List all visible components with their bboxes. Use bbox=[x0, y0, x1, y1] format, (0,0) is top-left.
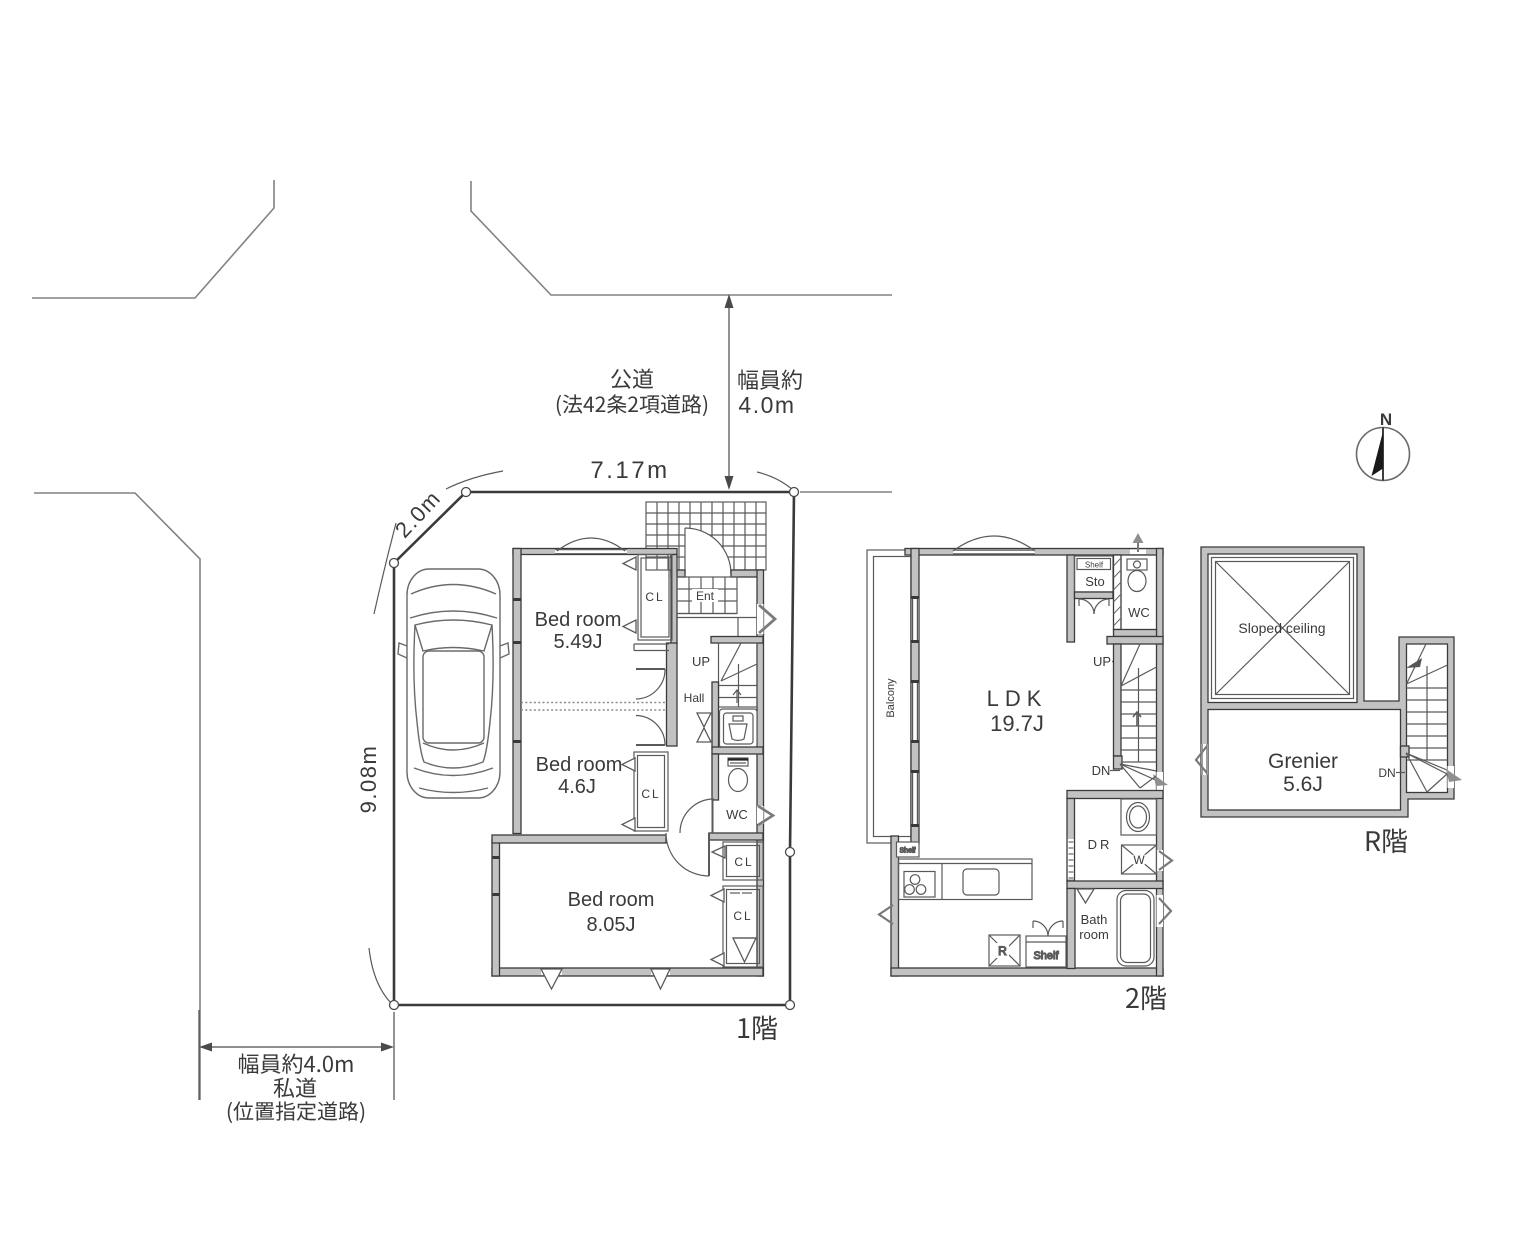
svg-text:CL: CL bbox=[734, 855, 753, 869]
svg-text:CL: CL bbox=[645, 590, 664, 604]
svg-text:Shelf: Shelf bbox=[900, 848, 916, 855]
svg-text:Bath: Bath bbox=[1081, 912, 1108, 927]
svg-text:Bed room: Bed room bbox=[568, 889, 655, 911]
svg-text:Sloped ceiling: Sloped ceiling bbox=[1238, 620, 1325, 636]
svg-text:7.17m: 7.17m bbox=[590, 457, 669, 484]
svg-text:DN: DN bbox=[1378, 766, 1395, 780]
svg-text:Ent: Ent bbox=[696, 589, 715, 603]
svg-text:19.7J: 19.7J bbox=[990, 711, 1044, 736]
svg-text:CL: CL bbox=[641, 787, 660, 801]
svg-text:Bed room: Bed room bbox=[535, 609, 622, 631]
svg-text:8.05J: 8.05J bbox=[587, 914, 636, 936]
svg-text:UP: UP bbox=[692, 654, 710, 669]
svg-text:room: room bbox=[1079, 927, 1109, 942]
svg-text:Shelf: Shelf bbox=[1033, 950, 1059, 962]
svg-text:UP: UP bbox=[1093, 654, 1111, 669]
svg-text:WC: WC bbox=[726, 807, 748, 822]
svg-text:5.6J: 5.6J bbox=[1283, 773, 1323, 796]
svg-text:DN: DN bbox=[1092, 763, 1111, 778]
svg-text:CL: CL bbox=[733, 909, 752, 923]
svg-text:Shelf: Shelf bbox=[1085, 561, 1104, 570]
svg-text:Hall: Hall bbox=[684, 691, 705, 705]
svg-text:R: R bbox=[998, 944, 1007, 958]
svg-text:4.0m: 4.0m bbox=[738, 392, 795, 418]
svg-text:Sto: Sto bbox=[1085, 574, 1105, 589]
svg-text:WC: WC bbox=[1128, 605, 1150, 620]
svg-text:9.08m: 9.08m bbox=[356, 745, 381, 814]
svg-text:4.6J: 4.6J bbox=[558, 776, 596, 798]
svg-text:5.49J: 5.49J bbox=[554, 631, 603, 653]
svg-text:W: W bbox=[1133, 853, 1145, 867]
svg-text:LDK: LDK bbox=[987, 686, 1048, 711]
svg-text:Grenier: Grenier bbox=[1268, 750, 1338, 773]
svg-text:Bed room: Bed room bbox=[536, 754, 623, 776]
svg-text:DR: DR bbox=[1088, 837, 1113, 852]
svg-text:N: N bbox=[1380, 410, 1392, 429]
svg-text:Balcony: Balcony bbox=[885, 678, 897, 718]
